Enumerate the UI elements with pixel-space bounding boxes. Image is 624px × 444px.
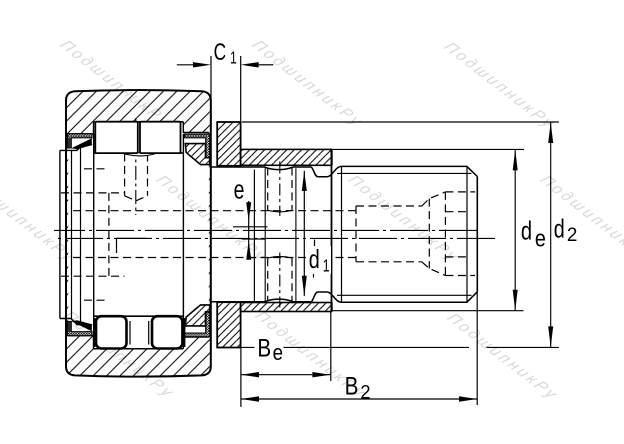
svg-text:d: d xyxy=(309,244,320,274)
svg-text:B: B xyxy=(257,334,271,362)
svg-text:2: 2 xyxy=(567,225,578,246)
svg-text:d: d xyxy=(521,216,532,246)
svg-text:1: 1 xyxy=(230,48,237,68)
svg-text:e: e xyxy=(234,176,245,204)
svg-text:e: e xyxy=(273,340,283,365)
svg-text:2: 2 xyxy=(360,382,370,403)
svg-text:B: B xyxy=(345,373,359,401)
svg-text:d: d xyxy=(554,213,565,243)
svg-text:C: C xyxy=(214,39,227,66)
svg-text:e: e xyxy=(535,226,546,253)
svg-text:1: 1 xyxy=(323,256,330,276)
